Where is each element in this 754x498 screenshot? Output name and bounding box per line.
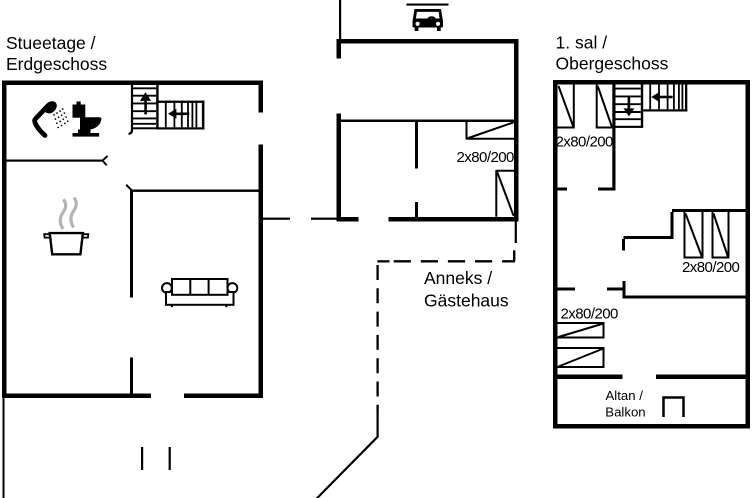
- svg-text:Stueetage /: Stueetage /: [6, 33, 96, 53]
- svg-text:Anneks /: Anneks /: [424, 268, 492, 288]
- svg-text:1. sal /: 1. sal /: [556, 32, 608, 52]
- svg-text:Obergeschoss: Obergeschoss: [556, 54, 669, 74]
- svg-text:2x80/200: 2x80/200: [457, 149, 515, 166]
- svg-text:Altan /: Altan /: [606, 388, 644, 403]
- svg-text:Gästehaus: Gästehaus: [424, 291, 509, 311]
- svg-text:Erdgeschoss: Erdgeschoss: [6, 54, 107, 74]
- svg-text:2x80/200: 2x80/200: [561, 306, 619, 323]
- svg-text:Balkon: Balkon: [605, 404, 645, 419]
- svg-text:2x80/200: 2x80/200: [682, 259, 740, 276]
- svg-text:2x80/200: 2x80/200: [556, 133, 614, 150]
